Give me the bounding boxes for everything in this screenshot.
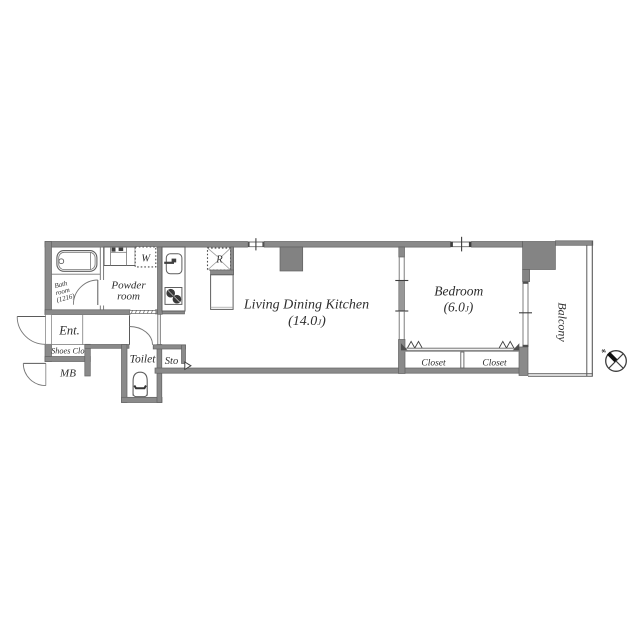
svg-text:W: W: [141, 253, 151, 264]
svg-text:Living Dining Kitchen: Living Dining Kitchen: [243, 297, 369, 312]
svg-text:Closet: Closet: [421, 358, 446, 368]
svg-text:room: room: [117, 291, 140, 303]
svg-text:Bedroom: Bedroom: [434, 283, 483, 298]
svg-text:MB: MB: [59, 367, 76, 379]
svg-text:Sto: Sto: [165, 356, 178, 367]
svg-text:Toilet: Toilet: [130, 354, 157, 366]
svg-text:Closet: Closet: [482, 358, 507, 368]
svg-text:(6.0J): (6.0J): [444, 300, 474, 315]
svg-text:Balcony: Balcony: [556, 302, 570, 342]
svg-text:Ent.: Ent.: [58, 323, 79, 337]
svg-text:Shoes Clo: Shoes Clo: [51, 347, 84, 356]
svg-text:(14.0J): (14.0J): [288, 314, 326, 329]
svg-text:R: R: [215, 255, 223, 266]
